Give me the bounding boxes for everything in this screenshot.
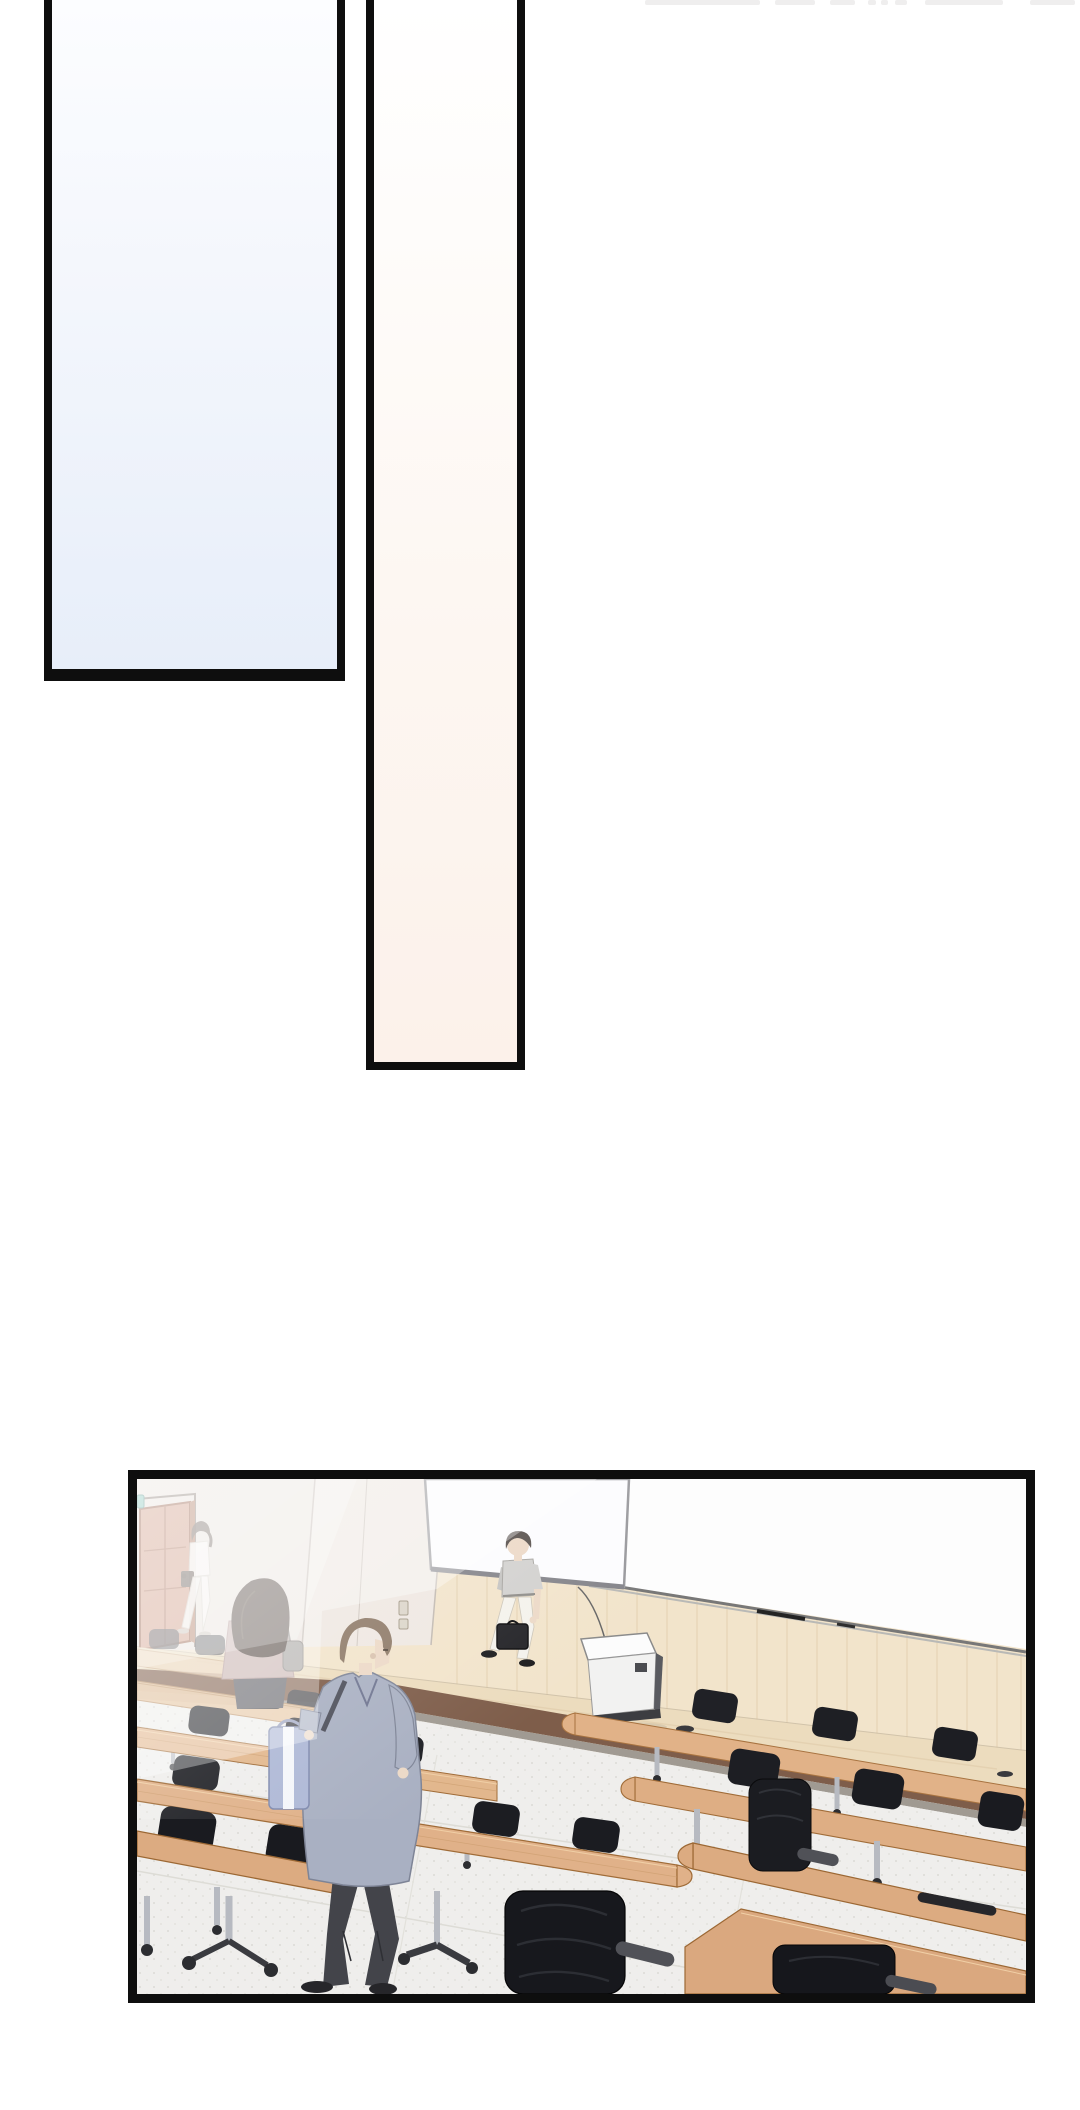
top-artifact <box>645 0 760 5</box>
top-artifact <box>881 0 888 5</box>
top-artifact <box>868 0 876 5</box>
top-artifact <box>1030 0 1075 5</box>
panel-empty-peach <box>366 0 525 1070</box>
top-artifact <box>895 0 907 5</box>
top-artifact <box>775 0 815 5</box>
top-artifact <box>830 0 855 5</box>
top-artifact <box>925 0 1003 5</box>
panel-empty-blue <box>44 0 345 681</box>
haze-overlay <box>137 1479 637 1819</box>
panel-lecture-hall <box>128 1470 1035 2003</box>
lecture-hall-scene <box>137 1479 1026 1994</box>
comic-page <box>0 0 1080 2110</box>
